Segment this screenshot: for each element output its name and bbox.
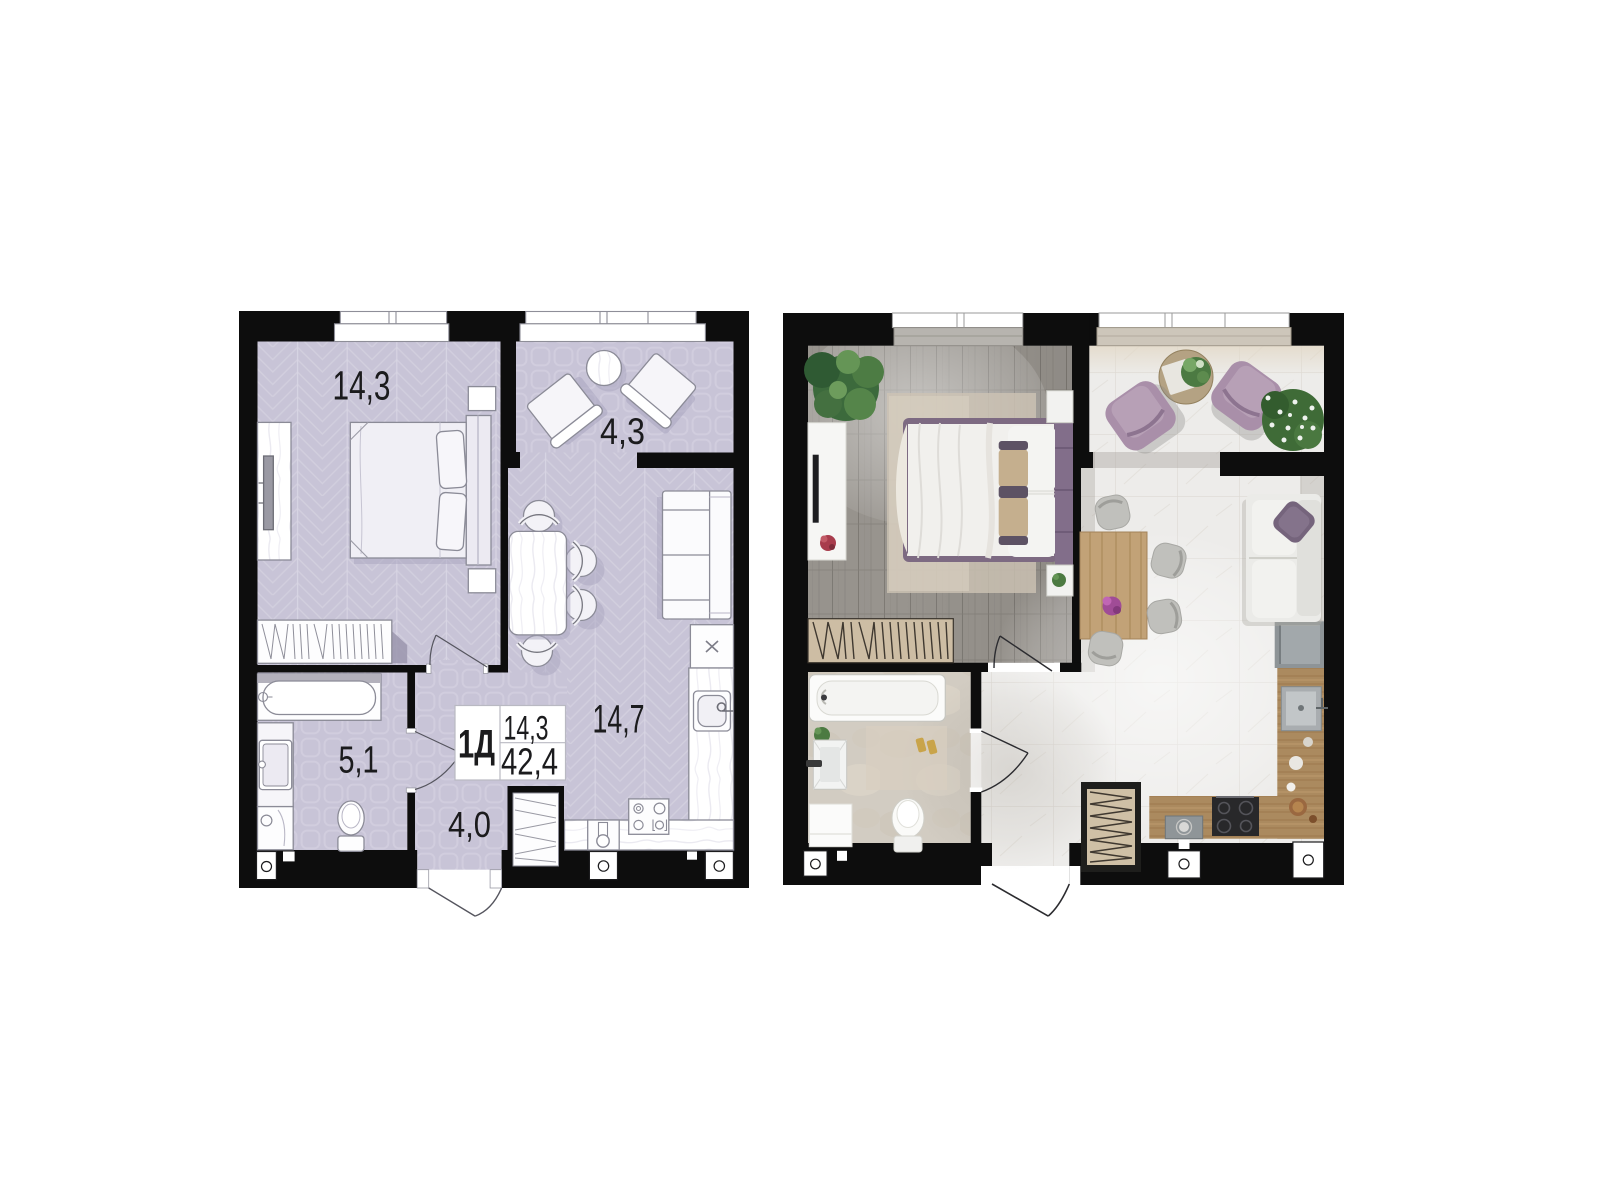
svg-text:4,3: 4,3 [600,411,645,452]
svg-text:4,0: 4,0 [448,804,491,845]
svg-text:5,1: 5,1 [339,740,379,782]
svg-text:14,3: 14,3 [333,363,391,409]
svg-text:14,7: 14,7 [593,698,645,742]
svg-text:1Д: 1Д [458,723,495,767]
svg-text:42,4: 42,4 [501,742,558,784]
